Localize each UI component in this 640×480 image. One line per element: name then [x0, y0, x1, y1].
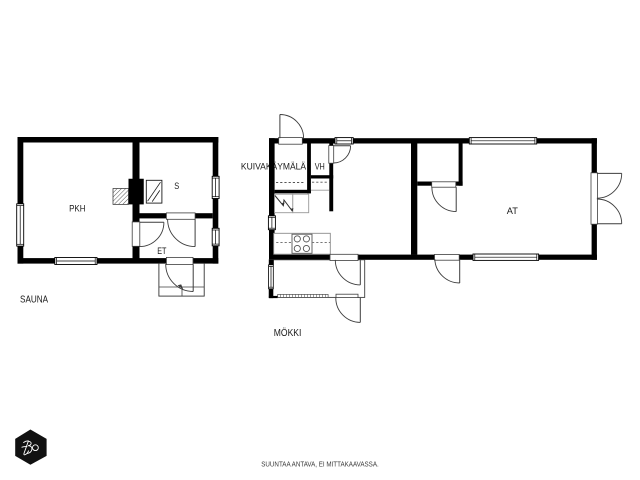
svg-text:PKH: PKH [69, 203, 86, 214]
svg-text:SUUNTAA ANTAVA, EI MITTAKAAVAS: SUUNTAA ANTAVA, EI MITTAKAAVASSA. [261, 461, 379, 468]
svg-text:VH: VH [315, 162, 325, 173]
svg-text:MÖKKI: MÖKKI [274, 327, 302, 339]
svg-text:AT: AT [507, 206, 518, 217]
svg-text:ET: ET [157, 246, 166, 257]
svg-text:S: S [174, 181, 179, 192]
svg-text:SAUNA: SAUNA [20, 294, 48, 305]
